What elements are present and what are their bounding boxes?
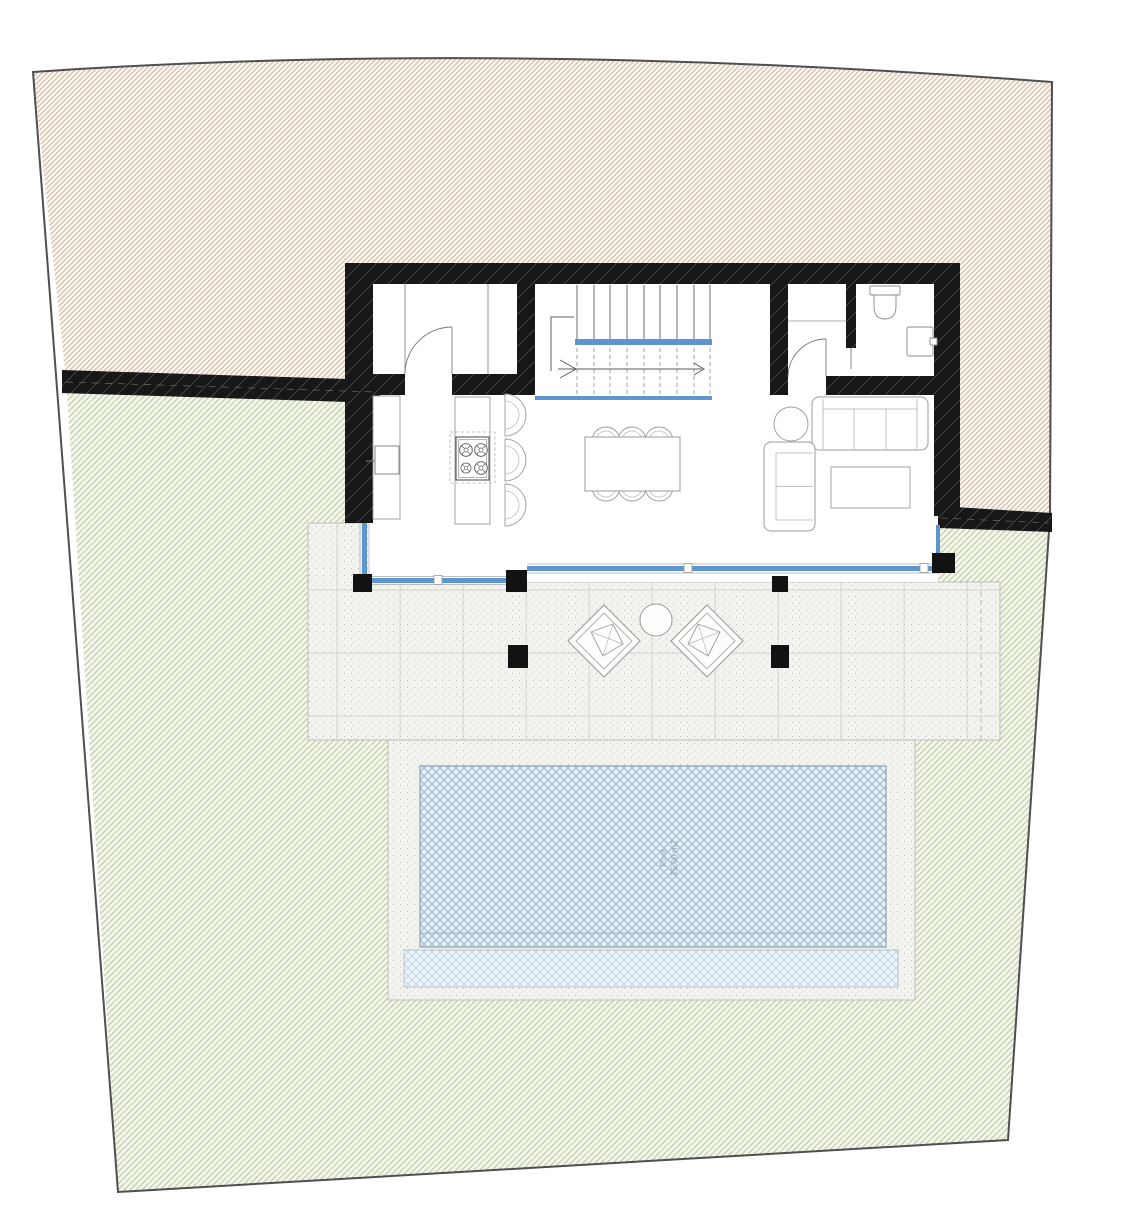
kitchen-wall-appliance <box>375 446 399 474</box>
facade-column-sw <box>353 574 372 592</box>
glass-west-segment <box>362 523 367 577</box>
pool-basin <box>420 766 886 947</box>
facade-column-mid <box>506 570 527 592</box>
wall-bath-west <box>770 284 788 395</box>
stove-burner <box>460 444 473 457</box>
pool-label-name: Pool <box>658 849 668 866</box>
coffee-table <box>831 467 910 508</box>
stair-landing-edge <box>575 339 712 345</box>
site-plan-canvas: Pool 25.00 m2 <box>0 0 1147 1230</box>
sofa-three-seat <box>812 397 928 450</box>
glass-south-segment-b <box>527 566 938 571</box>
glass-mullion <box>684 564 692 573</box>
washbasin-faucet <box>930 338 937 345</box>
wall-north <box>345 263 960 284</box>
glass-mullion <box>920 564 928 573</box>
stove-burner <box>475 444 488 457</box>
washbasin-counter <box>907 327 933 356</box>
pool-label-size: 25.00 m2 <box>669 840 679 876</box>
side-table <box>774 407 808 441</box>
dining-area <box>585 427 680 501</box>
toilet-bowl <box>874 295 896 319</box>
wall-bath-south <box>826 376 960 395</box>
floor-plan-drawing: Pool 25.00 m2 <box>0 0 1147 1230</box>
outdoor-table <box>640 604 672 636</box>
terrace-column-right <box>771 645 789 668</box>
washbasin <box>907 327 937 356</box>
stove-burner <box>461 463 471 473</box>
facade-column-east-small <box>772 576 788 592</box>
pool-area: Pool 25.00 m2 <box>388 740 915 1000</box>
toilet-tank <box>870 286 900 295</box>
terrace-column-left <box>508 645 528 668</box>
pool-shallow-step <box>404 950 898 987</box>
dining-table <box>585 437 680 491</box>
facade-column-se <box>932 553 955 573</box>
glass-mullion <box>434 576 442 585</box>
glass-east-segment <box>936 525 940 555</box>
wall-pantry-south-right <box>452 374 535 395</box>
stair-bottom-glass-rail <box>535 396 712 400</box>
bar-stools <box>505 394 526 526</box>
wall-bath-partition <box>846 284 856 348</box>
stove-burner <box>475 462 488 475</box>
